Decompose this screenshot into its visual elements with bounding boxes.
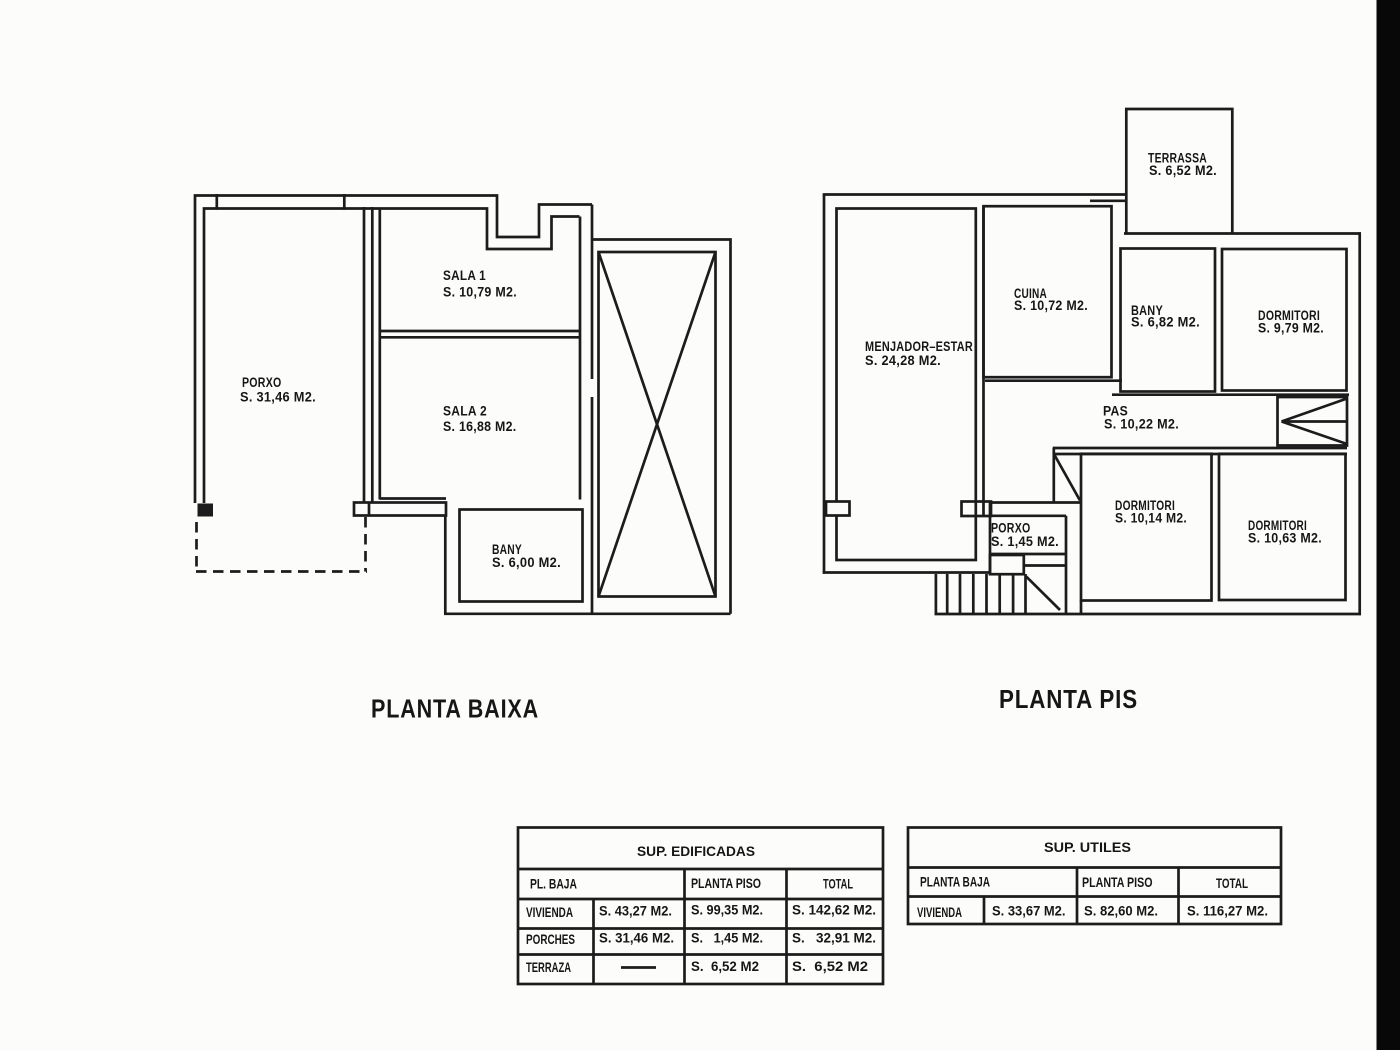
svg-text:S. 142,62 M2.: S. 142,62 M2. bbox=[792, 902, 876, 918]
svg-text:S. 24,28 M2.: S. 24,28 M2. bbox=[865, 353, 941, 368]
svg-text:PLANTA BAJA: PLANTA BAJA bbox=[920, 874, 990, 890]
svg-text:S. 6,82 M2.: S. 6,82 M2. bbox=[1131, 315, 1200, 330]
svg-text:PORXO: PORXO bbox=[242, 375, 282, 390]
svg-text:PLANTA PIS: PLANTA PIS bbox=[999, 684, 1138, 714]
svg-text:S. 6,52 M2.: S. 6,52 M2. bbox=[1149, 163, 1217, 178]
svg-text:S. 116,27 M2.: S. 116,27 M2. bbox=[1187, 903, 1268, 919]
svg-text:S. 1,45 M2.: S. 1,45 M2. bbox=[991, 534, 1059, 549]
svg-text:S. 10,14 M2.: S. 10,14 M2. bbox=[1115, 511, 1187, 526]
svg-text:MENJADOR–ESTAR: MENJADOR–ESTAR bbox=[865, 339, 973, 354]
svg-text:PL. BAJA: PL. BAJA bbox=[530, 876, 577, 892]
svg-text:S. 43,27 M2.: S. 43,27 M2. bbox=[599, 903, 672, 919]
svg-text:S. 16,88 M2.: S. 16,88 M2. bbox=[443, 419, 517, 434]
svg-text:S. 10,72 M2.: S. 10,72 M2. bbox=[1014, 298, 1088, 313]
svg-text:S. 82,60 M2.: S. 82,60 M2. bbox=[1084, 903, 1158, 919]
svg-text:S. 6,52 M2: S. 6,52 M2 bbox=[691, 958, 759, 974]
svg-text:SALA 2: SALA 2 bbox=[443, 404, 487, 419]
svg-text:TERRAZA: TERRAZA bbox=[526, 959, 571, 975]
svg-text:PLANTA BAIXA: PLANTA BAIXA bbox=[371, 694, 539, 724]
svg-text:VIVIENDA: VIVIENDA bbox=[917, 904, 962, 920]
svg-text:S. 6,52 M2: S. 6,52 M2 bbox=[792, 958, 868, 974]
svg-text:S. 6,00 M2.: S. 6,00 M2. bbox=[492, 555, 561, 570]
svg-text:SUP. UTILES: SUP. UTILES bbox=[1044, 839, 1131, 855]
svg-text:S. 1,45 M2.: S. 1,45 M2. bbox=[691, 930, 763, 946]
svg-text:S. 10,79 M2.: S. 10,79 M2. bbox=[443, 285, 517, 300]
svg-text:S. 99,35 M2.: S. 99,35 M2. bbox=[691, 902, 763, 918]
svg-text:S. 10,22 M2.: S. 10,22 M2. bbox=[1104, 417, 1179, 432]
svg-text:VIVIENDA: VIVIENDA bbox=[526, 904, 573, 920]
svg-text:S. 33,67 M2.: S. 33,67 M2. bbox=[992, 903, 1066, 919]
svg-text:SUP. EDIFICADAS: SUP. EDIFICADAS bbox=[637, 843, 755, 859]
svg-text:S. 10,63 M2.: S. 10,63 M2. bbox=[1248, 531, 1322, 546]
svg-text:S. 31,46 M2.: S. 31,46 M2. bbox=[240, 390, 316, 405]
svg-text:SALA 1: SALA 1 bbox=[443, 268, 486, 283]
svg-text:PORCHES: PORCHES bbox=[526, 931, 575, 947]
svg-text:S. 31,46 M2.: S. 31,46 M2. bbox=[599, 930, 674, 946]
svg-text:PLANTA PISO: PLANTA PISO bbox=[691, 875, 761, 891]
svg-text:PLANTA PISO: PLANTA PISO bbox=[1082, 874, 1153, 890]
svg-text:S. 9,79 M2.: S. 9,79 M2. bbox=[1258, 321, 1324, 336]
svg-text:TOTAL: TOTAL bbox=[1216, 875, 1248, 891]
svg-text:TOTAL: TOTAL bbox=[823, 876, 853, 892]
svg-text:S. 32,91 M2.: S. 32,91 M2. bbox=[792, 930, 876, 946]
